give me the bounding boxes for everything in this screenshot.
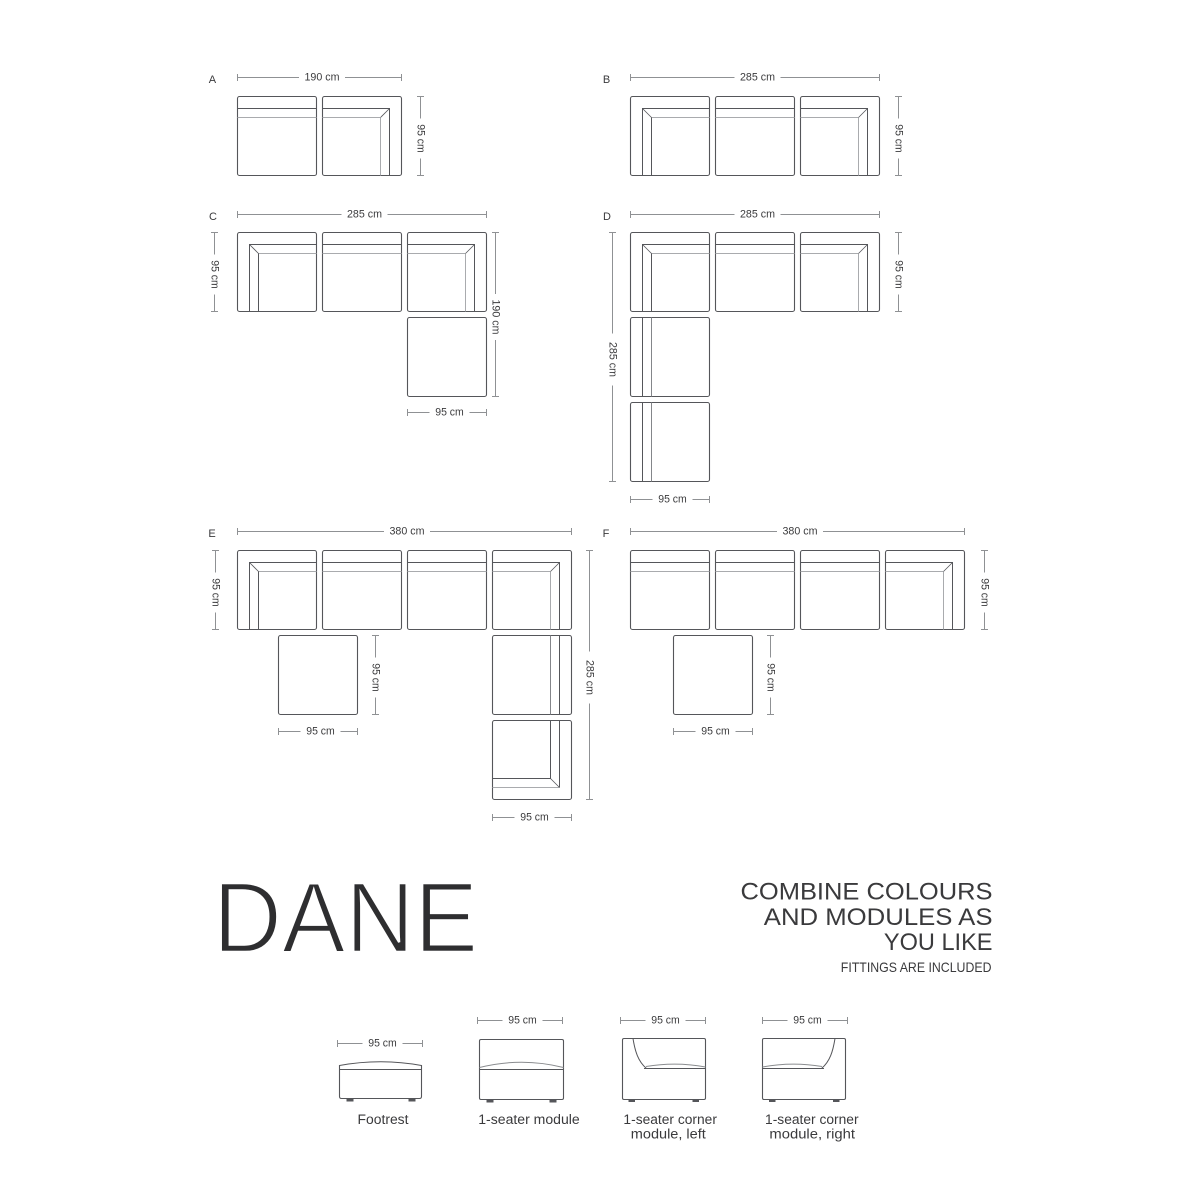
svg-text:95 cm: 95 cm (520, 811, 549, 823)
svg-text:E: E (208, 528, 215, 540)
svg-text:190 cm: 190 cm (490, 300, 502, 335)
svg-text:D: D (603, 211, 611, 223)
svg-text:285 cm: 285 cm (347, 208, 382, 220)
svg-text:95 cm: 95 cm (370, 663, 382, 692)
svg-text:285 cm: 285 cm (607, 342, 619, 377)
svg-text:95 cm: 95 cm (306, 725, 335, 737)
svg-text:285 cm: 285 cm (740, 71, 775, 83)
svg-text:F: F (603, 528, 610, 540)
svg-text:1-seater corner: 1-seater corner (623, 1112, 717, 1127)
svg-text:95 cm: 95 cm (701, 725, 730, 737)
svg-text:95 cm: 95 cm (210, 578, 222, 607)
svg-text:95 cm: 95 cm (209, 260, 221, 289)
svg-text:95 cm: 95 cm (893, 260, 905, 289)
svg-text:AND MODULES AS: AND MODULES AS (764, 904, 993, 931)
svg-text:285 cm: 285 cm (740, 208, 775, 220)
svg-text:95 cm: 95 cm (793, 1014, 822, 1026)
svg-text:FITTINGS ARE INCLUDED: FITTINGS ARE INCLUDED (841, 959, 992, 975)
svg-text:380 cm: 380 cm (390, 525, 425, 537)
svg-text:95 cm: 95 cm (415, 124, 427, 153)
svg-text:95 cm: 95 cm (765, 663, 777, 692)
svg-text:95 cm: 95 cm (368, 1037, 397, 1049)
svg-text:B: B (603, 74, 610, 86)
svg-text:95 cm: 95 cm (508, 1014, 537, 1026)
svg-text:190 cm: 190 cm (305, 71, 340, 83)
svg-text:C: C (209, 211, 217, 223)
svg-text:95 cm: 95 cm (979, 578, 991, 607)
svg-text:95 cm: 95 cm (893, 124, 905, 153)
svg-text:A: A (209, 74, 217, 86)
svg-text:1-seater corner: 1-seater corner (765, 1112, 859, 1127)
svg-text:COMBINE COLOURS: COMBINE COLOURS (741, 879, 993, 906)
svg-text:1-seater module: 1-seater module (478, 1112, 580, 1127)
svg-text:DANE: DANE (213, 862, 478, 974)
svg-text:module, left: module, left (631, 1127, 706, 1142)
svg-text:285 cm: 285 cm (584, 660, 596, 695)
svg-text:380 cm: 380 cm (783, 525, 818, 537)
svg-text:module, right: module, right (769, 1127, 855, 1142)
svg-text:YOU LIKE: YOU LIKE (884, 929, 993, 956)
svg-text:95 cm: 95 cm (651, 1014, 680, 1026)
svg-text:95 cm: 95 cm (435, 406, 464, 418)
svg-text:95 cm: 95 cm (658, 493, 687, 505)
svg-text:Footrest: Footrest (358, 1112, 409, 1127)
